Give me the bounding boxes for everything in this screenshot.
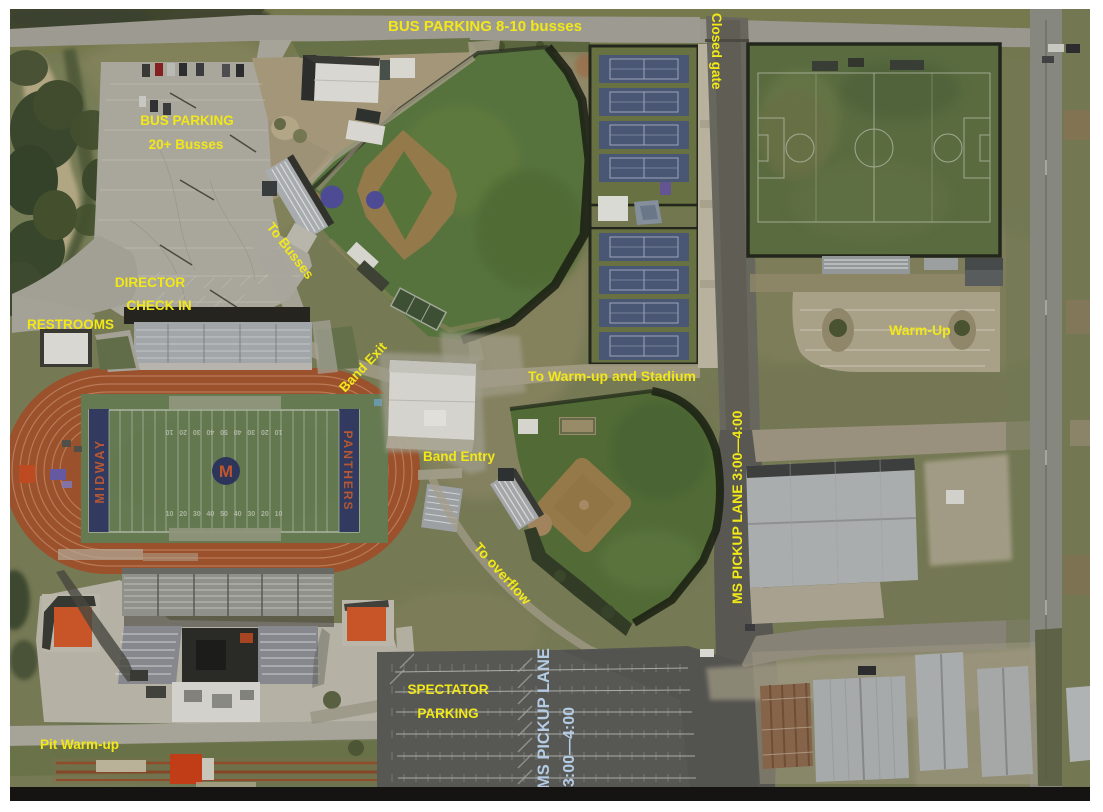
svg-text:RESTROOMS: RESTROOMS	[27, 317, 114, 332]
svg-text:To Warm-up and Stadium: To Warm-up and Stadium	[528, 368, 696, 384]
svg-text:BUS PARKING: BUS PARKING	[140, 113, 234, 128]
svg-text:MS PICKUP LANE 3:00—4:00: MS PICKUP LANE 3:00—4:00	[729, 410, 745, 604]
svg-text:SPECTATOR: SPECTATOR	[407, 682, 488, 697]
svg-text:MS PICKUP LANE: MS PICKUP LANE	[535, 648, 553, 789]
svg-text:Closed gate: Closed gate	[709, 13, 724, 90]
svg-text:Pit Warm-up: Pit Warm-up	[40, 737, 119, 752]
svg-text:DIRECTOR: DIRECTOR	[115, 275, 186, 290]
svg-text:Band Entry: Band Entry	[423, 449, 496, 464]
svg-text:20+ Busses: 20+ Busses	[149, 137, 224, 152]
svg-text:PARKING: PARKING	[417, 706, 478, 721]
svg-text:3:00—4:00: 3:00—4:00	[561, 707, 578, 787]
svg-text:BUS PARKING 8-10 busses: BUS PARKING 8-10 busses	[388, 18, 582, 35]
svg-text:Warm-Up: Warm-Up	[889, 322, 951, 338]
svg-text:CHECK IN: CHECK IN	[126, 298, 191, 313]
